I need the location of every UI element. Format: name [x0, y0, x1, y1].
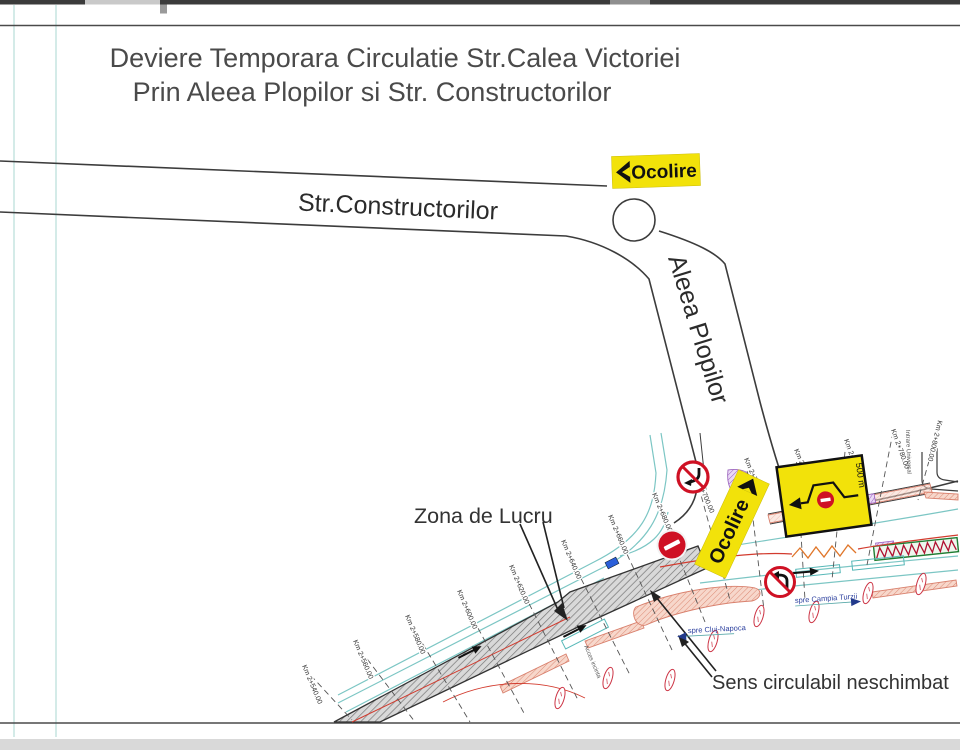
station-label: Km 2+800.00	[926, 420, 943, 462]
constructorilor-label: Str.Constructorilor	[297, 188, 498, 225]
plan-title: Deviere Temporara Circulatie Str.Calea V…	[110, 43, 681, 107]
to-campia-label: spre Campia Turzii	[795, 592, 858, 605]
no-turn-sign	[678, 462, 708, 492]
to-cluj-label: spre Cluj-Napoca	[688, 623, 747, 635]
access-label: Acces incinta	[582, 644, 602, 679]
traffic-diversion-plan: Km 2+540.00 Km 2+560.00 Km 2+580.00 Km 2…	[0, 0, 960, 750]
work-zone-label: Zona de Lucru	[414, 504, 553, 528]
station-label: Km 2+600.00	[455, 589, 478, 630]
scan-edge-artifacts	[0, 0, 960, 750]
station-label: Km 2+680.00	[650, 492, 673, 533]
station-label: Km 2+560.00	[351, 639, 374, 680]
unchanged-direction-label: Sens circulabil neschimbat	[712, 672, 949, 694]
title-line-2: Prin Aleea Plopilor si Str. Constructori…	[133, 77, 612, 107]
entrance-curb	[924, 492, 958, 500]
station-label: Km 2+660.00	[606, 514, 629, 555]
ocolire-sign-top: Ocolire	[611, 153, 700, 188]
station-label: Km 2+580.00	[403, 614, 426, 655]
road-outlines	[0, 161, 958, 722]
plopilor-label: Aleea Plopilor	[662, 252, 734, 408]
work-zone-marker	[605, 557, 619, 569]
constructorilor-bottom-and-plopilor-left-edge	[0, 212, 698, 523]
station-label: Km 2+620.00	[507, 564, 530, 605]
title-line-1: Deviere Temporara Circulatie Str.Calea V…	[110, 43, 681, 73]
detour-500m-sign: 500 m	[777, 455, 873, 536]
island-strip-right	[872, 580, 957, 598]
roundabout-circle	[613, 199, 655, 241]
site-plan-drawing: Km 2+540.00 Km 2+560.00 Km 2+580.00 Km 2…	[0, 0, 960, 750]
no-left-turn-sign	[766, 568, 795, 597]
work-zone-area	[334, 546, 707, 722]
ocolire-top-label: Ocolire	[631, 161, 697, 184]
constructorilor-top-edge	[0, 161, 607, 186]
